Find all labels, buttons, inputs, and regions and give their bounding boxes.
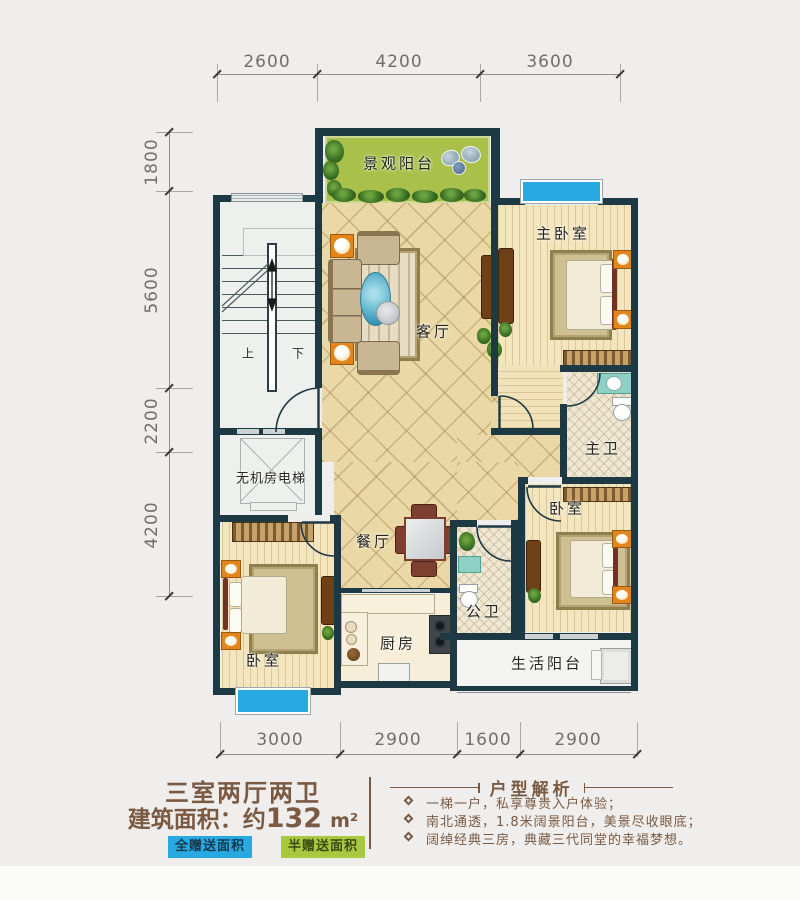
section-divider — [369, 777, 371, 849]
dimension-label: 1800 — [142, 138, 162, 185]
analysis-bullet: 南北通透，1.8米阔景阳台，美景尽收眼底； — [426, 811, 702, 830]
master-lobby-door-arc — [500, 396, 533, 429]
public-bath-label: 公卫 — [466, 601, 502, 622]
public-bath-door-arc — [477, 527, 511, 561]
bedroom-right-label: 卧室 — [549, 498, 585, 519]
area-unit: m² — [330, 810, 358, 832]
door-swing-overlay — [0, 0, 800, 900]
master-bath-door-arc — [567, 373, 600, 406]
bedroom-left-door-arc — [301, 523, 334, 556]
dimension-label: 2900 — [374, 730, 421, 750]
plan-area: 建筑面积：约132 m² — [103, 800, 383, 834]
bedroom-left-label: 卧室 — [246, 650, 282, 671]
dimension-extension — [156, 452, 193, 453]
dimension-line — [220, 754, 637, 755]
master-bedroom-label: 主卧室 — [536, 223, 590, 244]
dimension-extension — [156, 388, 193, 389]
stairs-down-label: 下 — [292, 345, 304, 362]
analysis-bullet: 阔绰经典三房，典藏三代同堂的幸福梦想。 — [426, 829, 692, 848]
bottom-light-strip — [0, 866, 800, 900]
entrance-door-arc — [276, 388, 320, 432]
stair-arrow-head-up — [268, 260, 276, 271]
stair-break-line — [222, 264, 268, 306]
dimension-label: 2900 — [554, 730, 601, 750]
dimension-label: 4200 — [375, 52, 422, 72]
dining-room-label: 餐厅 — [356, 531, 392, 552]
dimension-line — [169, 132, 170, 596]
dimension-label: 3600 — [526, 52, 573, 72]
elevator-label: 无机房电梯 — [236, 468, 306, 487]
dimension-label: 2600 — [243, 52, 290, 72]
area-label: 建筑面积：约 — [128, 807, 266, 833]
stair-arrow-head-down — [268, 299, 276, 310]
stairs-up-label: 上 — [242, 345, 254, 362]
header-line-right — [585, 787, 673, 789]
dimension-label: 2200 — [142, 397, 162, 444]
dimension-line — [217, 74, 620, 75]
kitchen-label: 厨房 — [380, 633, 416, 654]
dimension-label: 5600 — [142, 266, 162, 313]
dimension-label: 3000 — [256, 730, 303, 750]
header-line-left — [390, 787, 478, 789]
dimension-label: 4200 — [142, 501, 162, 548]
dimension-extension — [156, 132, 193, 133]
dimension-extension — [480, 64, 481, 102]
header-tick-left — [478, 783, 480, 793]
dimension-extension — [217, 64, 218, 102]
dimension-extension — [620, 64, 621, 102]
dimension-extension — [156, 596, 193, 597]
master-bath-label: 主卫 — [585, 438, 621, 459]
area-value: 132 — [266, 803, 322, 834]
stair-break-line — [222, 270, 268, 312]
life-balcony-label: 生活阳台 — [511, 653, 583, 674]
dimension-label: 1600 — [464, 730, 511, 750]
legend-full-gift: 全赠送面积 — [168, 836, 252, 858]
legend-half-gift: 半赠送面积 — [281, 836, 365, 858]
dimension-extension — [156, 191, 193, 192]
living-room-label: 客厅 — [416, 321, 452, 342]
dimension-extension — [317, 64, 318, 102]
view-balcony-label: 景观阳台 — [363, 153, 435, 174]
analysis-bullet: 一梯一户，私享尊贵入户体验； — [426, 793, 622, 812]
